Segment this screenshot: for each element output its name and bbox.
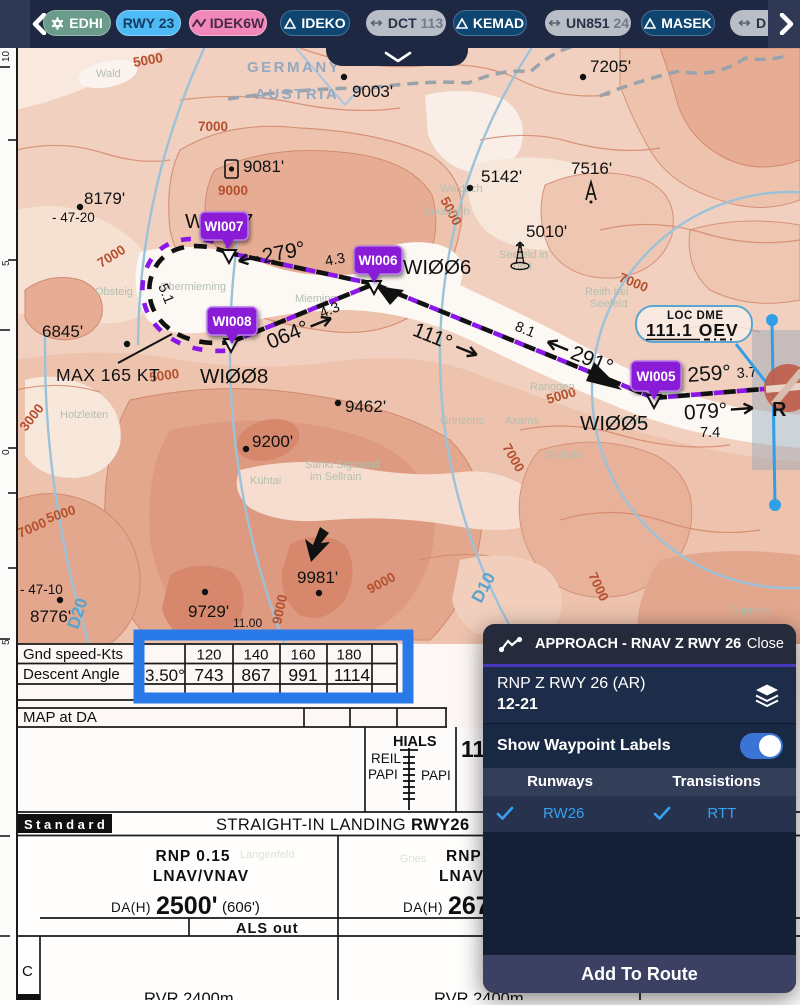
svg-text:9200': 9200' <box>252 432 293 451</box>
svg-text:Sellrain: Sellrain <box>545 449 582 461</box>
svg-text:STRAIGHT-IN LANDING RWY26: STRAIGHT-IN LANDING RWY26 <box>216 816 470 834</box>
svg-text:180: 180 <box>336 647 361 664</box>
svg-text:LNAV/VNAV: LNAV/VNAV <box>153 868 249 885</box>
svg-text:WIØØ5: WIØØ5 <box>580 412 648 435</box>
svg-text:Wald: Wald <box>96 68 121 80</box>
svg-text:GERMANY: GERMANY <box>247 59 341 76</box>
svg-text:1114: 1114 <box>334 665 371 685</box>
svg-text:Kühtai: Kühtai <box>250 475 281 487</box>
svg-text:WI006: WI006 <box>358 253 398 268</box>
svg-text:Ranggen: Ranggen <box>530 381 575 393</box>
svg-text:10: 10 <box>1 50 12 62</box>
svg-text:8776': 8776' <box>30 607 71 626</box>
svg-text:Holzleiten: Holzleiten <box>60 409 108 421</box>
svg-text:6845': 6845' <box>42 322 83 341</box>
svg-text:991: 991 <box>288 665 317 685</box>
svg-text:2500': 2500' <box>156 892 218 920</box>
svg-text:Standard: Standard <box>24 817 108 832</box>
svg-text:WI007: WI007 <box>204 219 243 234</box>
svg-text:Descent Angle: Descent Angle <box>23 666 120 683</box>
svg-text:AUSTRIA: AUSTRIA <box>255 86 339 103</box>
svg-text:R: R <box>772 399 787 421</box>
svg-text:5010': 5010' <box>526 222 567 241</box>
svg-text:140: 140 <box>243 647 268 664</box>
svg-text:WI008: WI008 <box>212 314 252 329</box>
svg-text:9729': 9729' <box>188 602 229 621</box>
svg-text:867: 867 <box>241 665 270 685</box>
svg-text:7000: 7000 <box>198 119 228 134</box>
svg-text:Grinzens: Grinzens <box>440 415 485 427</box>
svg-text:RVR 2400m: RVR 2400m <box>144 990 234 1000</box>
svg-text:C: C <box>22 963 33 980</box>
svg-text:Axams: Axams <box>505 415 539 427</box>
svg-text:079°: 079° <box>683 399 728 425</box>
svg-text:5: 5 <box>1 639 12 645</box>
svg-text:DA(H): DA(H) <box>403 900 443 915</box>
svg-text:- 47-20: - 47-20 <box>52 210 95 225</box>
svg-text:Leutasch: Leutasch <box>425 206 470 218</box>
svg-text:5: 5 <box>1 260 12 266</box>
svg-text:Sankt Sigmund: Sankt Sigmund <box>305 459 380 471</box>
svg-text:9000: 9000 <box>218 183 248 198</box>
svg-text:8179': 8179' <box>84 189 125 208</box>
svg-text:Langenfeld: Langenfeld <box>240 849 294 861</box>
svg-text:9003': 9003' <box>352 82 393 101</box>
svg-text:Reith bei: Reith bei <box>585 286 628 298</box>
svg-text:11.00: 11.00 <box>233 616 262 630</box>
svg-text:WI005: WI005 <box>636 369 676 384</box>
svg-text:Gries: Gries <box>400 853 427 865</box>
svg-text:9981': 9981' <box>297 568 338 587</box>
svg-text:120: 120 <box>196 647 221 664</box>
svg-text:11: 11 <box>461 736 486 762</box>
svg-text:REIL: REIL <box>371 751 402 766</box>
svg-text:7205': 7205' <box>590 57 631 76</box>
svg-text:160: 160 <box>290 647 315 664</box>
svg-text:im Sellrain: im Sellrain <box>310 471 361 483</box>
svg-text:WIØØ8: WIØØ8 <box>200 365 268 388</box>
svg-text:- 47-10: - 47-10 <box>20 582 63 597</box>
svg-text:0: 0 <box>1 449 12 455</box>
svg-text:5142': 5142' <box>481 167 522 186</box>
svg-text:9462': 9462' <box>345 397 386 416</box>
svg-text:Seefeld: Seefeld <box>590 298 627 310</box>
svg-text:Weidach: Weidach <box>440 183 483 195</box>
svg-text:MAP at DA: MAP at DA <box>23 709 97 726</box>
svg-text:HIALS: HIALS <box>393 734 437 750</box>
svg-text:9081': 9081' <box>243 157 284 176</box>
svg-text:259°: 259° <box>687 361 732 387</box>
svg-text:RNP: RNP <box>446 848 482 865</box>
svg-text:7516': 7516' <box>571 159 612 178</box>
svg-text:PAPI: PAPI <box>421 768 451 783</box>
svg-text:RNP 0.15: RNP 0.15 <box>156 848 231 865</box>
svg-text:DA(H): DA(H) <box>111 900 151 915</box>
svg-text:Fulpmes: Fulpmes <box>728 605 771 617</box>
svg-text:(606'): (606') <box>222 899 260 916</box>
svg-text:7.4: 7.4 <box>700 425 720 441</box>
svg-text:Gnd speed-Kts: Gnd speed-Kts <box>23 646 123 663</box>
svg-text:WIØØ6: WIØØ6 <box>403 256 471 279</box>
svg-text:PAPI: PAPI <box>368 767 398 782</box>
svg-text:MAX 165 KT: MAX 165 KT <box>56 365 160 385</box>
svg-text:LNAV: LNAV <box>439 868 484 885</box>
svg-text:Obsteig: Obsteig <box>95 286 133 298</box>
svg-text:111.1 OEV: 111.1 OEV <box>646 320 739 340</box>
svg-text:743: 743 <box>194 665 223 685</box>
svg-text:3.50°: 3.50° <box>145 666 185 685</box>
svg-text:ALS out: ALS out <box>236 921 299 937</box>
